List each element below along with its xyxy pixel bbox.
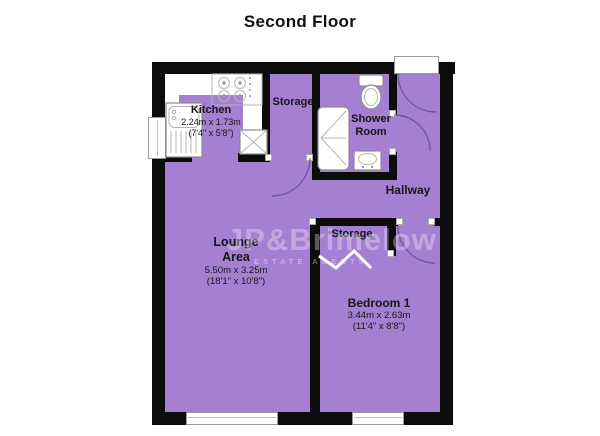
- door-post: [389, 148, 396, 155]
- door-post: [396, 218, 403, 225]
- door-post: [265, 154, 272, 161]
- room-name: Storage: [253, 96, 333, 109]
- door-post: [428, 218, 435, 225]
- page-title: Second Floor: [0, 12, 600, 32]
- wall-bedroom-top-right: [434, 218, 444, 226]
- wall-shower-right-upper: [389, 74, 397, 114]
- room-dims-metric: 3.44m x 2.63m: [309, 310, 449, 321]
- door-post: [387, 250, 394, 257]
- room-name: Room: [330, 126, 412, 139]
- lounge-label: Lounge Area 5.50m x 3.25m (18'1" x 10'8"…: [166, 235, 306, 287]
- wall-shower-right-lower: [389, 152, 397, 180]
- door-post: [306, 154, 313, 161]
- room-dims-metric: 5.50m x 3.25m: [166, 265, 306, 276]
- wall-outer-right: [440, 62, 453, 425]
- room-dims-imperial: (11'4" x 8'8"): [309, 321, 449, 332]
- shower-room-label: Shower Room: [330, 113, 412, 139]
- window-bedroom: [352, 412, 404, 425]
- wall-shower-bottom: [312, 172, 397, 180]
- room-dims-imperial: (18'1" x 10'8"): [166, 276, 306, 287]
- room-name: Hallway: [368, 183, 448, 197]
- entrance-door-opening: [394, 56, 439, 74]
- room-dims-metric: 2.24m x 1.73m: [156, 117, 266, 128]
- window-lounge: [186, 412, 278, 425]
- room-name: Area: [166, 250, 306, 265]
- storage-top-label: Storage: [253, 96, 333, 109]
- storage-mid-label: Storage: [312, 228, 392, 241]
- bedroom-label: Bedroom 1 3.44m x 2.63m (11'4" x 8'8"): [309, 296, 449, 333]
- door-post: [309, 218, 316, 225]
- floor-plan: Second Floor: [0, 0, 600, 436]
- room-name: Lounge: [166, 235, 306, 250]
- wall-kitchen-bottom-left: [165, 153, 192, 162]
- room-name: Kitchen: [156, 104, 266, 117]
- room-dims-imperial: (7'4" x 5'8"): [156, 128, 266, 139]
- hallway-label: Hallway: [368, 183, 448, 197]
- kitchen-label: Kitchen 2.24m x 1.73m (7'4" x 5'8"): [156, 104, 266, 138]
- room-name: Shower: [330, 113, 412, 126]
- room-name: Bedroom 1: [309, 296, 449, 310]
- wall-storage-right: [312, 74, 320, 180]
- room-name: Storage: [312, 228, 392, 241]
- wall-bedroom-top-left: [310, 218, 398, 226]
